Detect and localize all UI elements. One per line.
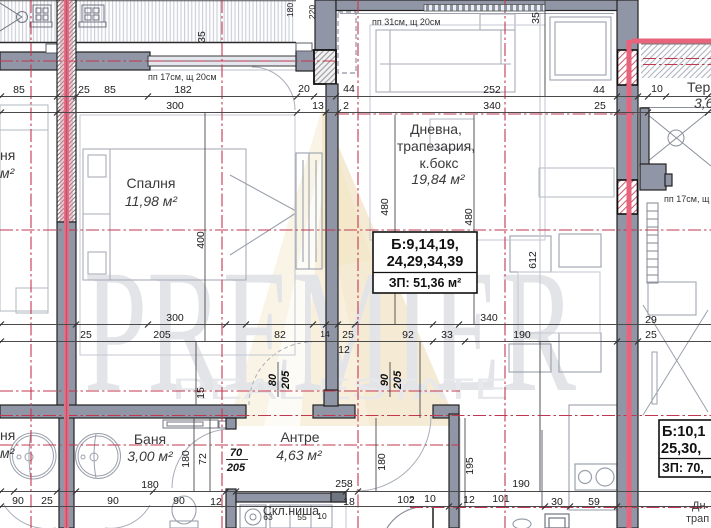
- svg-text:252: 252: [483, 84, 501, 96]
- svg-text:90: 90: [107, 495, 119, 507]
- svg-text:18: 18: [343, 496, 355, 508]
- svg-text:пп 31см, щ 20см: пп 31см, щ 20см: [372, 17, 441, 27]
- svg-text:90: 90: [173, 495, 185, 507]
- svg-text:Дн: Дн: [692, 500, 706, 512]
- svg-text:ня: ня: [0, 427, 15, 443]
- svg-text:24,29,34,39: 24,29,34,39: [387, 254, 464, 270]
- svg-text:13: 13: [312, 100, 324, 112]
- svg-text:195: 195: [464, 457, 476, 475]
- svg-text:ЗП: 51,36 м²: ЗП: 51,36 м²: [389, 276, 462, 290]
- svg-text:190: 190: [512, 478, 530, 490]
- svg-text:10: 10: [424, 493, 436, 505]
- svg-text:44: 44: [593, 84, 605, 96]
- svg-text:15: 15: [195, 387, 207, 399]
- svg-text:25: 25: [80, 329, 92, 341]
- svg-text:10: 10: [651, 83, 663, 95]
- svg-text:25: 25: [78, 84, 90, 96]
- svg-text:101: 101: [492, 493, 510, 505]
- svg-text:30: 30: [551, 496, 563, 508]
- svg-text:72: 72: [197, 453, 209, 465]
- svg-text:205: 205: [280, 370, 292, 390]
- svg-text:300: 300: [166, 100, 184, 112]
- svg-text:80: 80: [267, 373, 279, 386]
- svg-text:182: 182: [174, 84, 192, 96]
- svg-text:12: 12: [210, 496, 222, 508]
- svg-text:44: 44: [343, 83, 355, 95]
- svg-text:12: 12: [463, 494, 475, 506]
- svg-text:70: 70: [230, 447, 243, 459]
- svg-text:пп 17см, щ: пп 17см, щ: [664, 194, 710, 204]
- svg-text:180: 180: [141, 479, 159, 491]
- svg-text:25,30,: 25,30,: [661, 441, 701, 457]
- svg-text:25: 25: [645, 329, 657, 341]
- svg-text:92: 92: [402, 329, 414, 341]
- svg-text:35: 35: [196, 31, 208, 43]
- svg-text:85: 85: [13, 84, 25, 96]
- svg-text:пп 17см, щ 20см: пп 17см, щ 20см: [148, 72, 217, 82]
- svg-text:220: 220: [307, 5, 317, 19]
- svg-text:480: 480: [463, 208, 475, 226]
- svg-text:2: 2: [410, 495, 415, 505]
- svg-text:29: 29: [645, 314, 657, 326]
- svg-text:Баня: Баня: [134, 431, 166, 447]
- svg-text:400: 400: [195, 231, 207, 249]
- svg-text:3,68: 3,68: [694, 95, 711, 111]
- svg-text:82: 82: [274, 329, 286, 341]
- svg-text:35: 35: [530, 12, 542, 24]
- svg-text:19,84 м²: 19,84 м²: [411, 171, 466, 187]
- svg-text:Б:9,14,19,: Б:9,14,19,: [391, 237, 459, 253]
- svg-text:Скл.ниша: Скл.ниша: [263, 504, 319, 518]
- svg-text:258: 258: [335, 478, 353, 490]
- svg-text:Б:10,1: Б:10,1: [662, 424, 705, 440]
- svg-text:180: 180: [180, 450, 192, 468]
- svg-text:11,98 м²: 11,98 м²: [125, 193, 178, 209]
- svg-text:12: 12: [338, 344, 350, 356]
- svg-text:59: 59: [588, 496, 600, 508]
- svg-text:205: 205: [153, 329, 171, 341]
- svg-text:Дневна,: Дневна,: [410, 121, 462, 137]
- svg-text:480: 480: [379, 198, 391, 216]
- svg-text:190: 190: [513, 329, 531, 341]
- svg-text:85: 85: [104, 84, 116, 96]
- svg-text:90: 90: [12, 495, 24, 507]
- svg-text:612: 612: [527, 251, 539, 269]
- svg-text:2: 2: [343, 100, 349, 112]
- svg-text:25: 25: [41, 495, 53, 507]
- svg-text:к.бокс: к.бокс: [419, 155, 458, 171]
- svg-text:м²: м²: [0, 445, 16, 461]
- svg-text:90: 90: [379, 373, 391, 386]
- svg-text:14: 14: [320, 329, 330, 339]
- svg-text:Спалня: Спалня: [127, 175, 176, 191]
- svg-text:трап: трап: [686, 513, 709, 525]
- svg-text:25: 25: [594, 100, 606, 112]
- svg-text:300: 300: [166, 312, 184, 324]
- svg-text:180: 180: [285, 3, 295, 17]
- svg-text:3,00 м²: 3,00 м²: [127, 448, 174, 464]
- svg-text:25: 25: [342, 329, 354, 341]
- svg-text:205: 205: [226, 462, 246, 474]
- svg-text:трапезария,: трапезария,: [397, 138, 475, 154]
- svg-text:Тер: Тер: [687, 79, 711, 95]
- svg-text:Антре: Антре: [280, 429, 319, 445]
- svg-text:33: 33: [441, 329, 453, 341]
- svg-text:340: 340: [480, 312, 498, 324]
- svg-text:ЗП: 70,: ЗП: 70,: [662, 461, 704, 475]
- svg-text:ня: ня: [0, 147, 15, 163]
- svg-text:20: 20: [298, 83, 310, 95]
- svg-text:205: 205: [392, 370, 404, 390]
- svg-text:180: 180: [376, 453, 388, 471]
- svg-text:м²: м²: [0, 165, 16, 181]
- svg-text:340: 340: [483, 100, 501, 112]
- svg-text:4,63 м²: 4,63 м²: [276, 447, 323, 463]
